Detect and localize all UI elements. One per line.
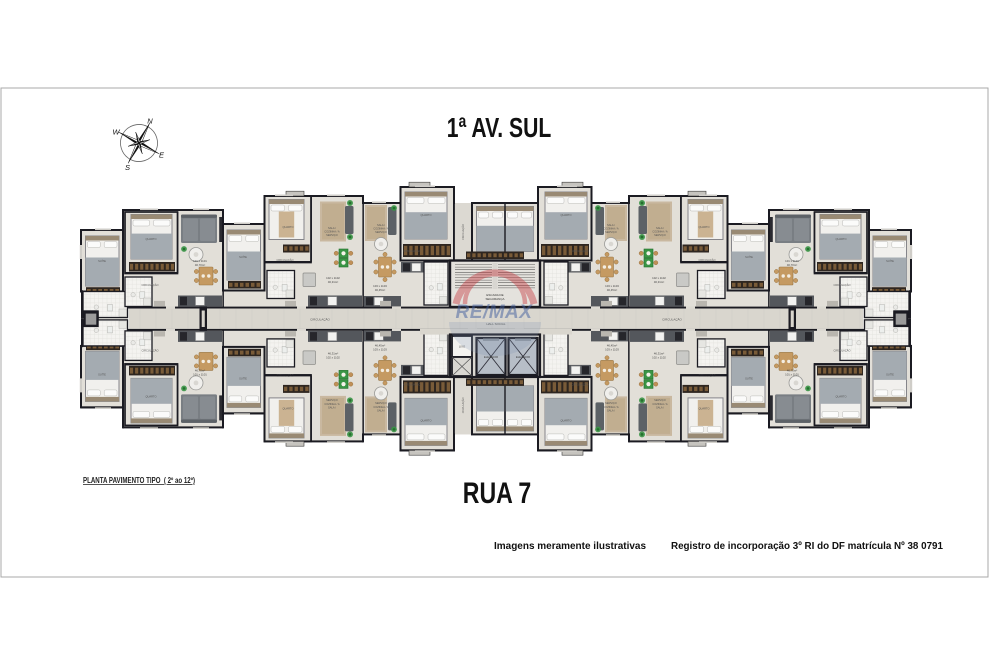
svg-text:SUÍTE: SUÍTE [239,376,247,380]
svg-text:102 x 1102: 102 x 1102 [652,355,666,359]
svg-text:46,45m²: 46,45m² [375,343,385,347]
svg-text:QUARTO: QUARTO [835,394,846,398]
svg-text:SALA /: SALA / [656,226,664,230]
svg-text:QUARTO: QUARTO [560,213,571,217]
svg-text:CIRCULAÇÃO: CIRCULAÇÃO [310,317,330,322]
svg-text:N: N [147,117,153,126]
svg-text:CIRCULAÇÃO: CIRCULAÇÃO [462,397,465,413]
svg-text:46,45m²: 46,45m² [607,288,617,292]
svg-text:COZINHA / A: COZINHA / A [603,227,619,231]
svg-text:101 x 1101: 101 x 1101 [193,372,207,376]
svg-text:SERVIÇO: SERVIÇO [375,230,387,234]
svg-text:46,70m²: 46,70m² [787,263,797,267]
svg-text:SALA /: SALA / [656,405,664,409]
svg-text:SERVIÇO: SERVIÇO [375,401,387,405]
svg-text:QUARTO: QUARTO [698,225,709,229]
svg-text:Registro de incorporação 3º RI: Registro de incorporação 3º RI do DF mat… [671,540,943,552]
svg-text:46,45m²: 46,45m² [607,343,617,347]
svg-text:QUARTO: QUARTO [282,406,293,410]
svg-text:101 x 1101: 101 x 1101 [785,372,799,376]
svg-text:QUARTO: QUARTO [835,237,846,241]
svg-text:SALA /: SALA / [607,408,615,412]
svg-text:SEGURANÇA: SEGURANÇA [485,297,504,301]
svg-text:SALA /: SALA / [328,405,336,409]
svg-text:46,70m²: 46,70m² [195,368,205,372]
svg-text:QUARTO: QUARTO [145,237,156,241]
svg-text:SERVIÇO: SERVIÇO [654,233,666,237]
svg-text:COZINHA / A: COZINHA / A [324,230,340,234]
svg-text:RE/MAX: RE/MAX [456,302,534,323]
svg-text:W: W [112,128,120,137]
svg-text:SERVIÇO: SERVIÇO [605,401,617,405]
svg-text:COZINHA / A: COZINHA / A [652,230,668,234]
svg-text:QUARTO: QUARTO [420,213,431,217]
svg-text:COZINHA / A: COZINHA / A [373,227,389,231]
svg-text:CIRCULAÇÃO: CIRCULAÇÃO [662,317,682,322]
svg-text:QUARTO: QUARTO [560,418,571,422]
svg-text:SALA /: SALA / [377,223,385,227]
svg-text:QUARTO: QUARTO [420,418,431,422]
svg-text:COZINHA / A: COZINHA / A [324,402,340,406]
svg-text:SERVIÇO: SERVIÇO [605,230,617,234]
svg-text:Imagens meramente ilustrativas: Imagens meramente ilustrativas [494,540,646,552]
svg-text:SUÍTE: SUÍTE [745,255,753,259]
svg-text:QUARTO: QUARTO [145,394,156,398]
svg-text:COZINHA / A: COZINHA / A [603,405,619,409]
svg-text:SUÍTE: SUÍTE [886,259,894,263]
svg-text:103 x 1103: 103 x 1103 [605,347,619,351]
svg-text:COZINHA / A: COZINHA / A [652,402,668,406]
svg-text:103 x 1103: 103 x 1103 [373,347,387,351]
svg-text:46,45m²: 46,45m² [375,288,385,292]
svg-text:QUARTO: QUARTO [282,225,293,229]
svg-text:SALA /: SALA / [377,408,385,412]
svg-text:ELEVADOR: ELEVADOR [516,355,530,359]
svg-text:46,70m²: 46,70m² [787,368,797,372]
svg-text:QUARTO: QUARTO [698,406,709,410]
svg-text:46,31m²: 46,31m² [654,280,664,284]
svg-text:SALA /: SALA / [607,223,615,227]
svg-text:46,31m²: 46,31m² [328,280,338,284]
svg-text:SERVIÇO: SERVIÇO [654,398,666,402]
svg-text:SERVIÇO: SERVIÇO [326,233,338,237]
svg-text:46,70m²: 46,70m² [195,263,205,267]
svg-text:PLANTA PAVIMENTO TIPO ( 2º ao: PLANTA PAVIMENTO TIPO ( 2º ao 12º) [83,476,195,485]
svg-text:SALA /: SALA / [328,226,336,230]
svg-text:RUA 7: RUA 7 [463,477,532,510]
svg-text:SUÍTE: SUÍTE [239,255,247,259]
svg-text:46,31m²: 46,31m² [654,351,664,355]
svg-text:46,31m²: 46,31m² [328,351,338,355]
svg-text:SERVIÇO: SERVIÇO [326,398,338,402]
svg-text:S: S [125,163,130,172]
svg-text:SUÍTE: SUÍTE [98,259,106,263]
svg-text:102 x 1102: 102 x 1102 [326,355,340,359]
svg-text:SUÍTE: SUÍTE [886,372,894,376]
svg-text:SUÍTE: SUÍTE [745,376,753,380]
svg-text:COZINHA / A: COZINHA / A [373,405,389,409]
svg-text:1ª AV. SUL: 1ª AV. SUL [447,112,552,143]
svg-text:CIRCULAÇÃO: CIRCULAÇÃO [462,224,465,240]
svg-text:SUÍTE: SUÍTE [98,372,106,376]
